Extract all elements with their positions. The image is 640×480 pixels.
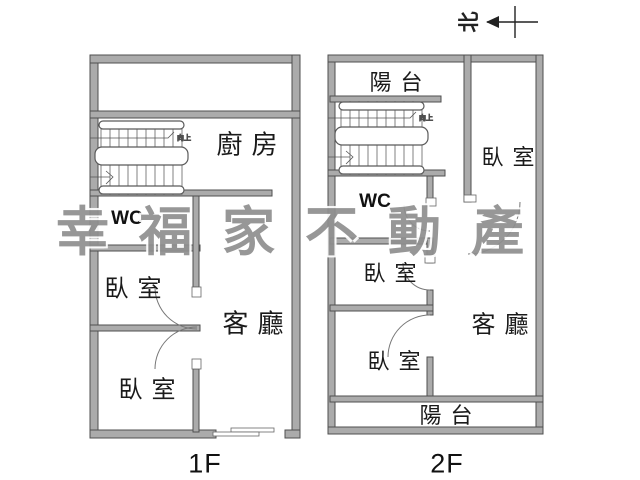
f1-entry-threshold-1 <box>231 428 274 432</box>
north-arrow-icon <box>486 6 538 38</box>
f2-wall-bedrooms <box>330 305 433 311</box>
f2-stair-rail-bottom <box>339 166 424 174</box>
f1-entry-threshold-2 <box>213 432 259 436</box>
f2-bedroom-right-label: 臥室 <box>472 140 543 172</box>
f2-balcony-top-label: 陽台 <box>360 65 431 97</box>
f1-wall-top <box>90 55 300 63</box>
f2-wall-bedroom-right <box>464 55 471 202</box>
f1-up-label: 向上 <box>177 133 191 142</box>
f1-living-label: 客廳 <box>213 304 292 341</box>
f1-wall-bottom-right <box>285 430 300 438</box>
f2-stair-rail-top <box>339 102 424 110</box>
f2-stair-handrail <box>335 127 428 145</box>
compass-north-label: 北 <box>453 12 483 33</box>
f2-balcony-bottom-label: 陽台 <box>410 398 481 430</box>
f1-wall-living-west-lower <box>193 369 199 432</box>
f1-door-leaf-bedroom-upper <box>192 287 201 297</box>
f1-stair-rail-top <box>99 121 184 129</box>
f2-bedroom-lower-label: 臥室 <box>358 344 429 376</box>
f1-bedroom-lower-label: 臥室 <box>110 370 185 405</box>
f1-wall-bedrooms <box>90 325 200 331</box>
f2-up-label: 向上 <box>419 113 433 122</box>
f1-door-leaf-bedroom-lower <box>192 359 201 369</box>
f2-caption: 2F <box>430 449 464 480</box>
f2-stairs: 向上 <box>328 101 433 175</box>
f1-bedroom-upper-label: 臥室 <box>96 269 171 304</box>
f1-wall-front-strip <box>90 111 300 118</box>
f1-door-arc-bedroom-lower <box>155 327 197 369</box>
f1-kitchen-label: 廚房 <box>207 125 286 162</box>
f2-door-leaf-bedroom-right <box>464 195 476 202</box>
agency-watermark: 幸福家不動產 <box>56 204 554 262</box>
f1-stairs: 向上 <box>90 121 191 195</box>
f1-caption: 1F <box>188 449 222 480</box>
f1-stair-rail-bottom <box>99 186 184 194</box>
f1-stair-handrail <box>95 147 188 165</box>
floor-plan-page: 向上 <box>0 0 640 480</box>
f2-living-label: 客廳 <box>463 305 538 340</box>
f2-wall-top <box>328 55 543 62</box>
f1-stair-up-line <box>90 132 174 138</box>
